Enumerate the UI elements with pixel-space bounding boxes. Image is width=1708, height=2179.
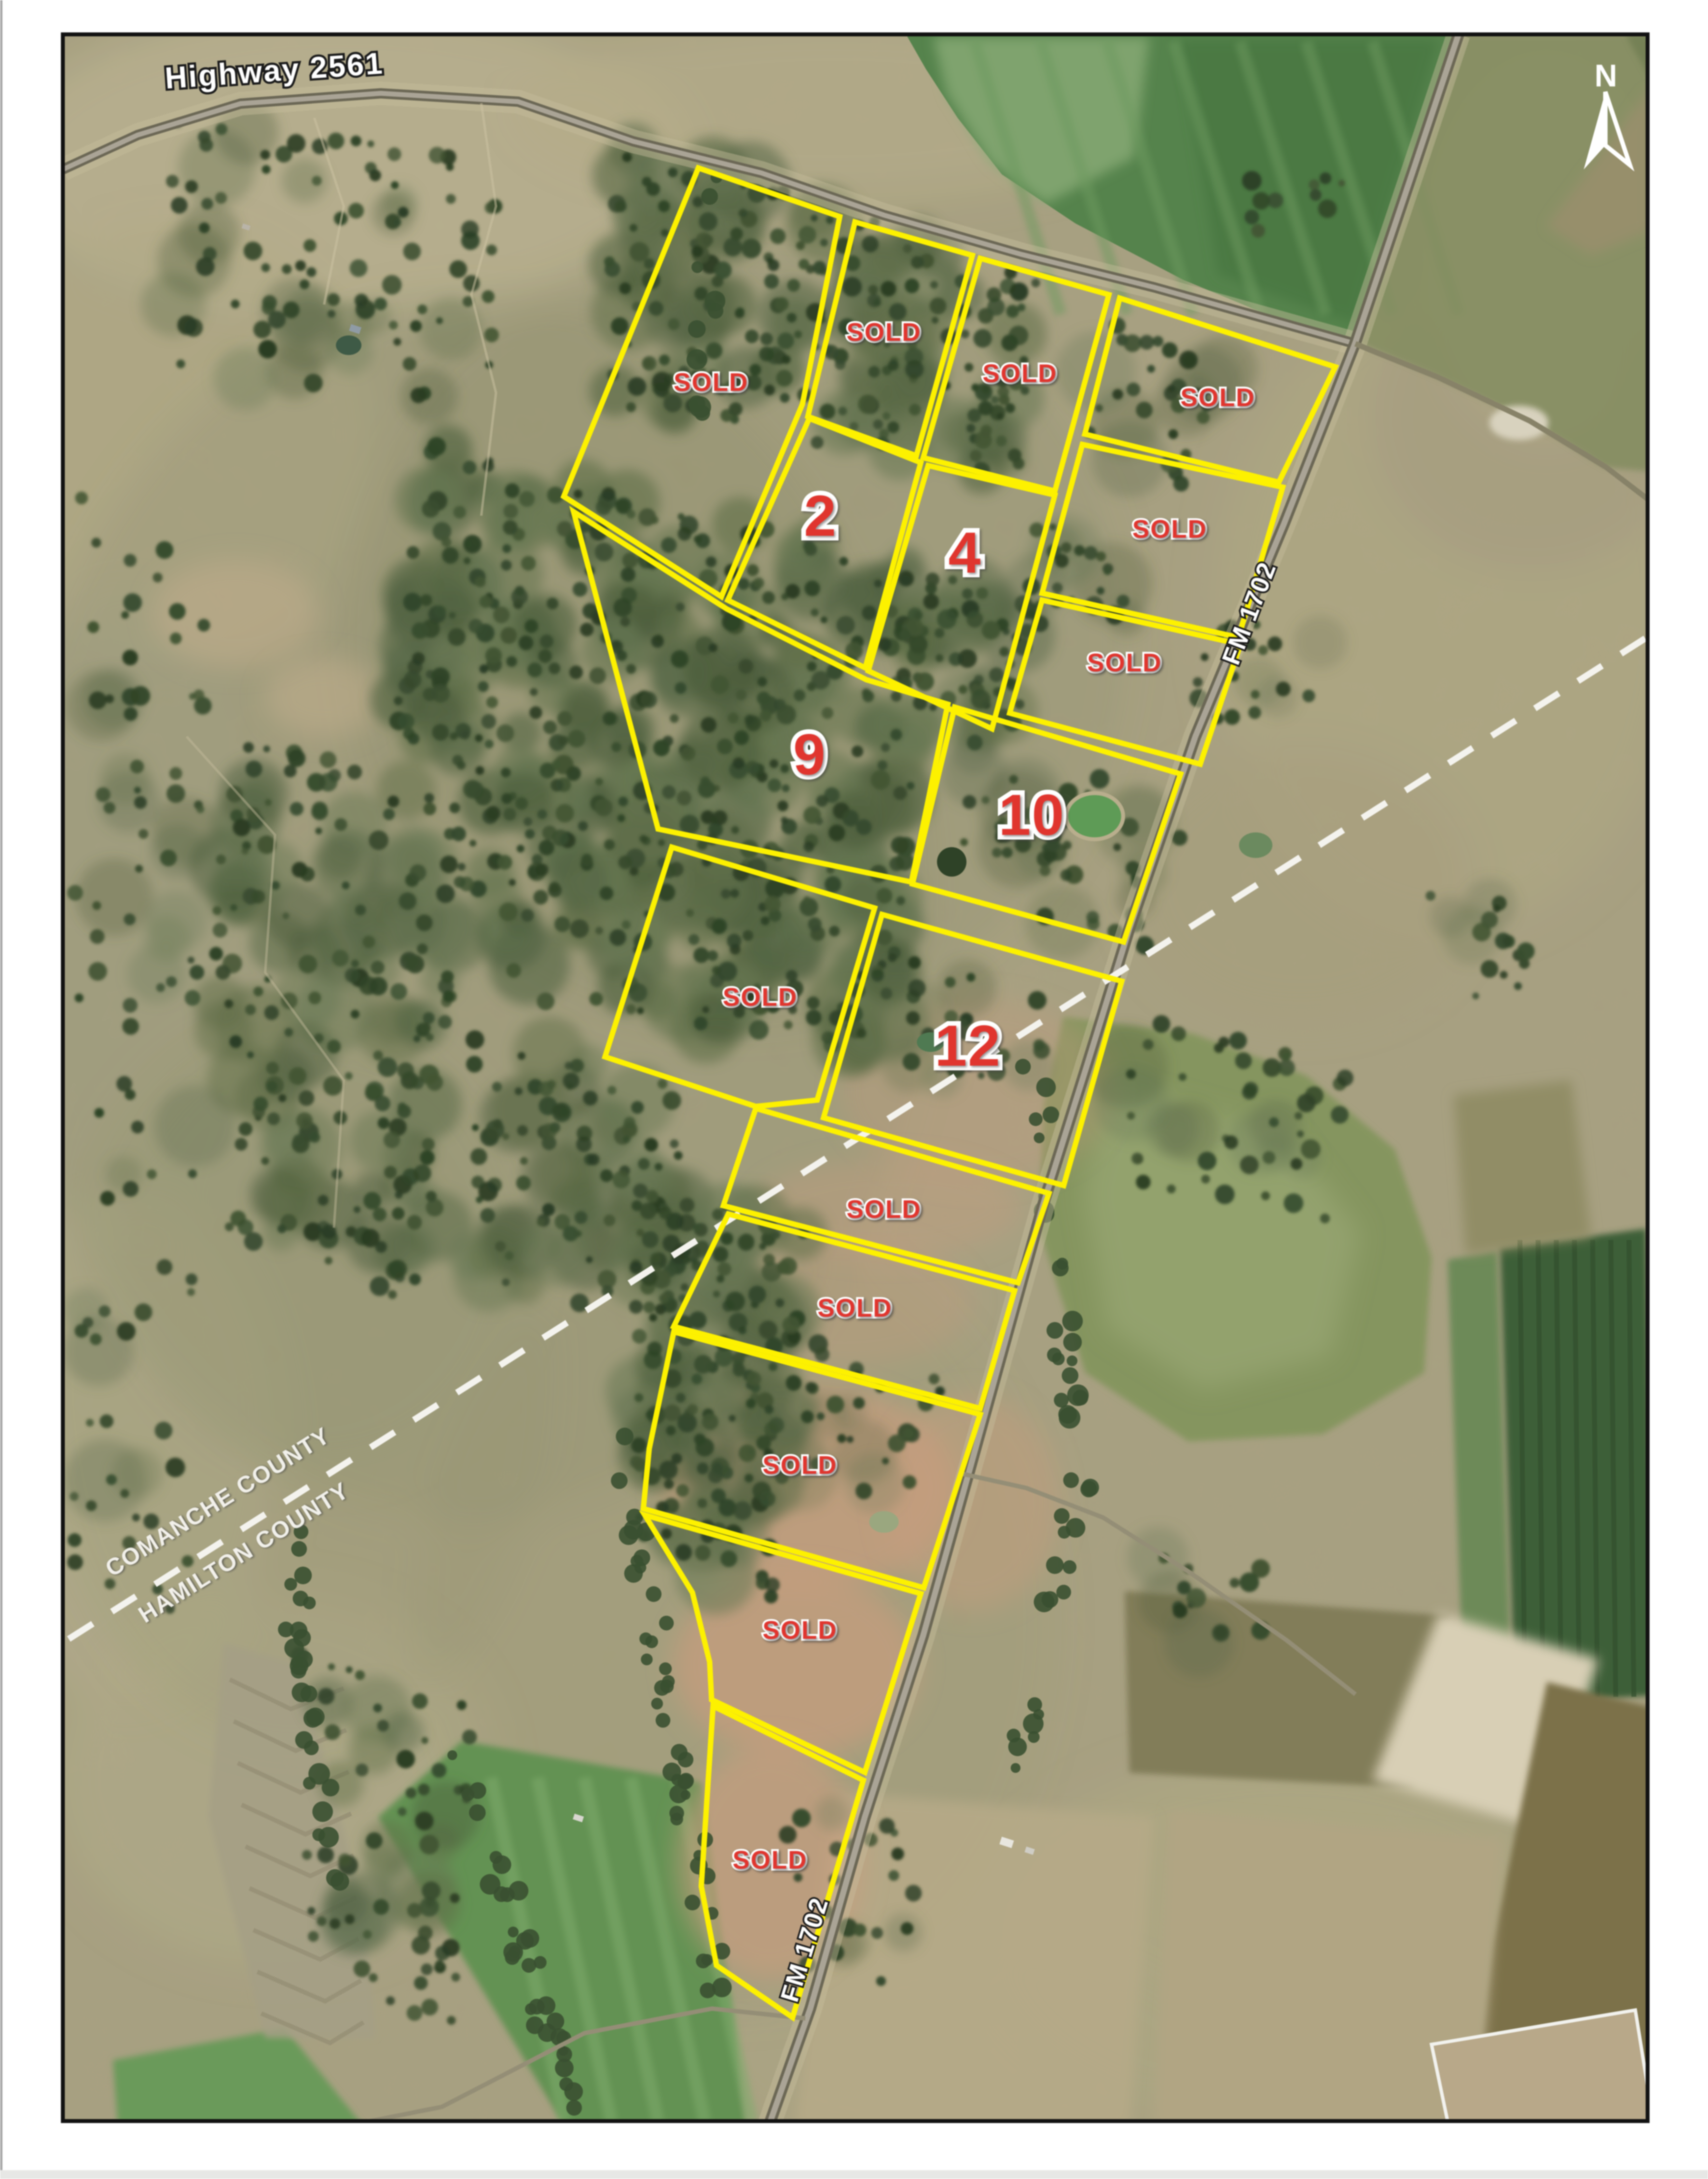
svg-text:N: N [1595,58,1617,93]
svg-text:SOLD: SOLD [818,1294,892,1323]
svg-text:9: 9 [793,722,826,787]
svg-text:SOLD: SOLD [723,983,798,1012]
svg-text:SOLD: SOLD [847,1195,921,1224]
svg-text:12: 12 [935,1014,1001,1078]
svg-text:SOLD: SOLD [1087,649,1162,677]
svg-text:SOLD: SOLD [983,359,1057,388]
svg-text:2: 2 [804,484,837,549]
svg-text:10: 10 [998,783,1065,848]
svg-text:4: 4 [948,521,982,585]
svg-text:SOLD: SOLD [847,318,921,347]
svg-text:SOLD: SOLD [674,368,748,397]
svg-text:SOLD: SOLD [763,1451,837,1480]
svg-text:SOLD: SOLD [733,1846,807,1875]
svg-text:SOLD: SOLD [763,1616,837,1645]
svg-text:SOLD: SOLD [1181,384,1255,412]
svg-text:SOLD: SOLD [1132,515,1207,544]
